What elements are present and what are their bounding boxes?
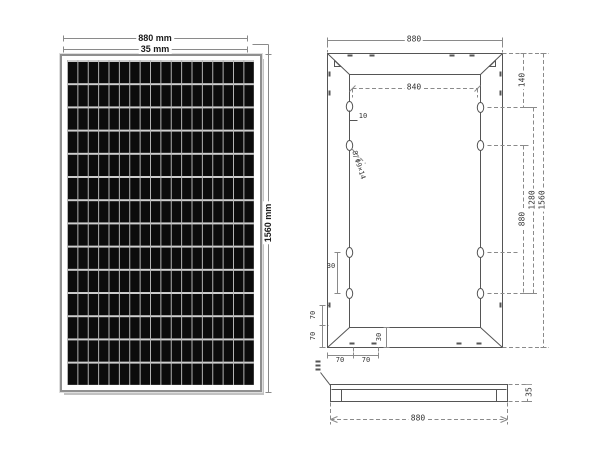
technical-drawing-canvas: 880 mm 35 mm 1560 mm 880 840 10 8/Φ9×14 … (0, 0, 600, 450)
cell-grid (67, 60, 254, 385)
panel-front-view (60, 54, 262, 392)
bottom-frame-30-label: 30 (376, 333, 384, 341)
rear-outer-width-label: 880 (405, 36, 423, 45)
front-height-dimension-label: 1560 mm (263, 202, 273, 245)
right-dim-880-label: 880 (519, 210, 528, 228)
left-hole-gap-label: 30 (327, 263, 335, 271)
side-thickness-label: 35 (526, 385, 535, 399)
rear-view-lines (320, 38, 549, 359)
bottom-70-label-2: 70 (362, 357, 370, 365)
side-width-label: 880 (409, 415, 427, 424)
rear-inner-width-label: 840 (405, 84, 423, 93)
hole-offset-label: 10 (359, 113, 367, 121)
bottom-70-label-1: 70 (336, 357, 344, 365)
right-dim-1560-label: 1560 (539, 188, 548, 211)
front-width-dimension-label: 880 mm (136, 33, 174, 43)
front-frame-dimension-label: 35 mm (139, 44, 172, 54)
left-bottom-70-label-1: 70 (310, 311, 318, 319)
left-bottom-70-label-2: 70 (310, 332, 318, 340)
right-dim-1280-label: 1280 (529, 188, 538, 211)
right-dim-140-label: 140 (519, 71, 528, 89)
